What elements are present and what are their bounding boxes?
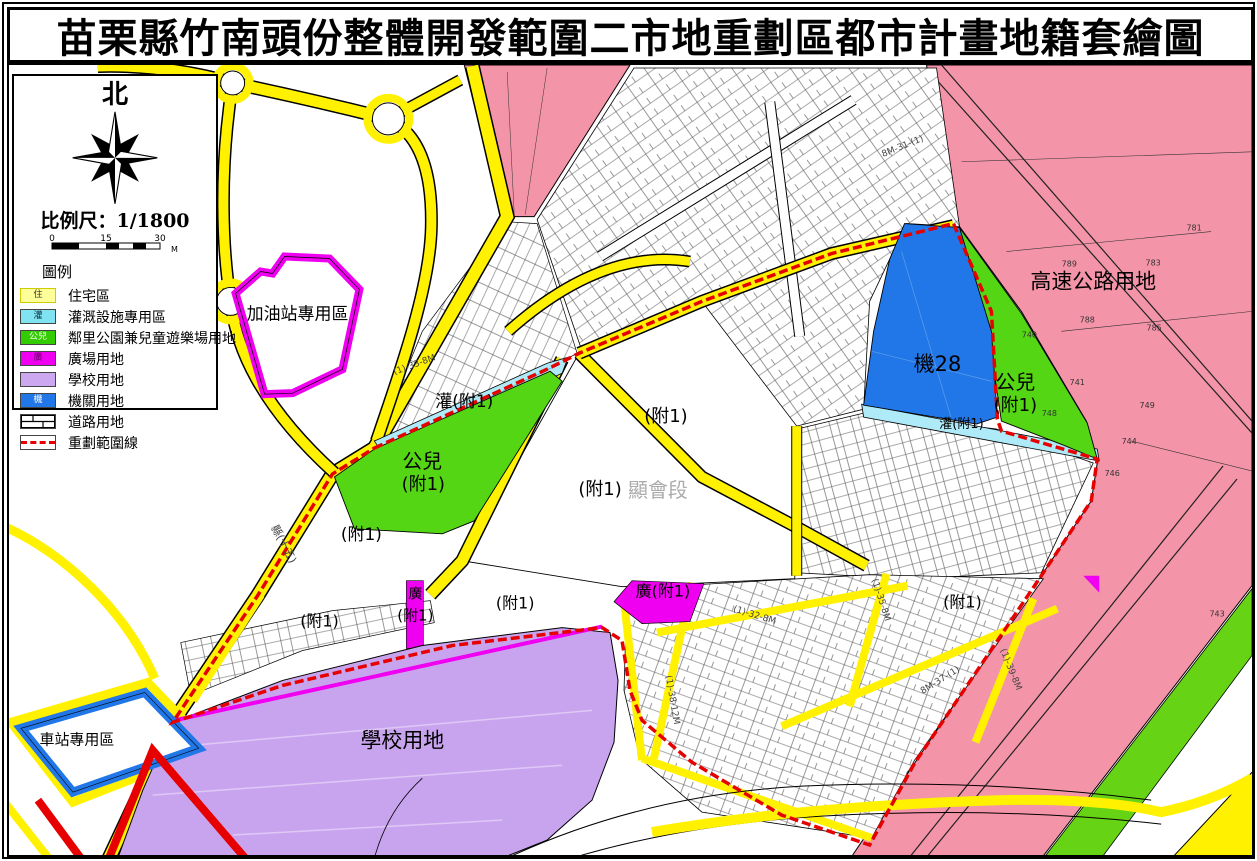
residential-swatch: 住 xyxy=(20,288,56,303)
scale-unit: M xyxy=(171,245,178,254)
parcel-number: 748 xyxy=(1042,409,1057,418)
label-school: 學校用地 xyxy=(360,728,444,752)
legend-item-road: 道路用地 xyxy=(20,411,210,432)
north-label: 北 xyxy=(20,82,210,108)
roundabout-2 xyxy=(372,103,404,135)
parcel-number: 781 xyxy=(1186,224,1201,233)
roundabout-1 xyxy=(221,71,245,95)
parcel-number: 741 xyxy=(1070,378,1085,387)
parcel-number: 744 xyxy=(1122,437,1137,446)
parcel-number: 788 xyxy=(1080,315,1095,324)
park-swatch: 公兒 xyxy=(20,330,56,345)
legend-item-boundary: 重劃範圍線 xyxy=(20,432,210,453)
label-irrigation-left: 灌(附1) xyxy=(435,391,493,411)
label-station: 車站專用區 xyxy=(39,730,114,748)
label-highway: 高速公路用地 xyxy=(1030,269,1156,293)
label-park-right-2: (附1) xyxy=(994,395,1037,416)
title-bar: 苗栗縣竹南頭份整體開發範圍二市地重劃區都市計畫地籍套繪圖 xyxy=(7,7,1254,63)
map-title: 苗栗縣竹南頭份整體開發範圍二市地重劃區都市計畫地籍套繪圖 xyxy=(57,6,1205,64)
cadastral-map-sheet: 苗栗縣竹南頭份整體開發範圍二市地重劃區都市計畫地籍套繪圖 xyxy=(0,0,1257,861)
legend-item-school: 學校用地 xyxy=(20,369,210,390)
parcel-number: 785 xyxy=(1147,323,1162,332)
parcel-number: 746 xyxy=(1105,469,1120,478)
legend-item-agency: 機 機關用地 xyxy=(20,390,210,411)
label-section-name: 顯會段 xyxy=(628,478,688,502)
legend-title: 圖例 xyxy=(42,261,210,282)
label-park-left-1: 公兒 xyxy=(402,449,442,473)
legend-box: 北 比例尺：1/1800 0 15 30 M 圖例 住 住宅區 灌 灌溉設施專用… xyxy=(12,74,218,410)
label-park-right-1: 公兒 xyxy=(995,370,1035,394)
scale-bar: 0 15 30 M xyxy=(40,233,190,257)
label-annex-center: (附1) xyxy=(578,479,621,500)
boundary-swatch xyxy=(20,435,56,450)
label-annex-west: (附1) xyxy=(341,524,382,544)
label-annex-mid: (附1) xyxy=(496,594,535,613)
parcel-number: 743 xyxy=(1209,610,1224,619)
label-annex-southwest: (附1) xyxy=(300,612,339,631)
label-irrigation-right: 灌(附1) xyxy=(939,417,983,432)
compass-rose-icon xyxy=(69,108,161,204)
road-swatch xyxy=(20,414,56,429)
school-swatch xyxy=(20,372,56,387)
irrigation-swatch: 灌 xyxy=(20,309,56,324)
label-plaza-strip-1: 廣 xyxy=(408,586,422,603)
parcel-number: 740 xyxy=(1022,330,1037,339)
legend-item-irrigation: 灌 灌溉設施專用區 xyxy=(20,306,210,327)
agency-swatch: 機 xyxy=(20,393,56,408)
scale-label: 比例尺：1/1800 xyxy=(20,206,210,233)
legend-item-residential: 住 住宅區 xyxy=(20,285,210,306)
label-annex-top: (附1) xyxy=(644,406,687,427)
label-plaza-strip-2: (附1) xyxy=(397,607,433,625)
parcel-number: 789 xyxy=(1062,259,1077,268)
legend-item-plaza: 廣 廣場用地 xyxy=(20,348,210,369)
label-agency-28: 機28 xyxy=(914,352,962,376)
label-park-left-2: (附1) xyxy=(402,474,445,495)
label-annex-southeast: (附1) xyxy=(943,593,982,612)
label-plaza-right: 廣(附1) xyxy=(636,582,691,601)
parcel-number: 783 xyxy=(1146,258,1161,267)
parcel-number: 749 xyxy=(1140,401,1155,410)
label-gas-station: 加油站專用區 xyxy=(247,303,349,323)
legend-item-park: 公兒 鄰里公園兼兒童遊樂場用地 xyxy=(20,327,210,348)
plaza-swatch: 廣 xyxy=(20,351,56,366)
